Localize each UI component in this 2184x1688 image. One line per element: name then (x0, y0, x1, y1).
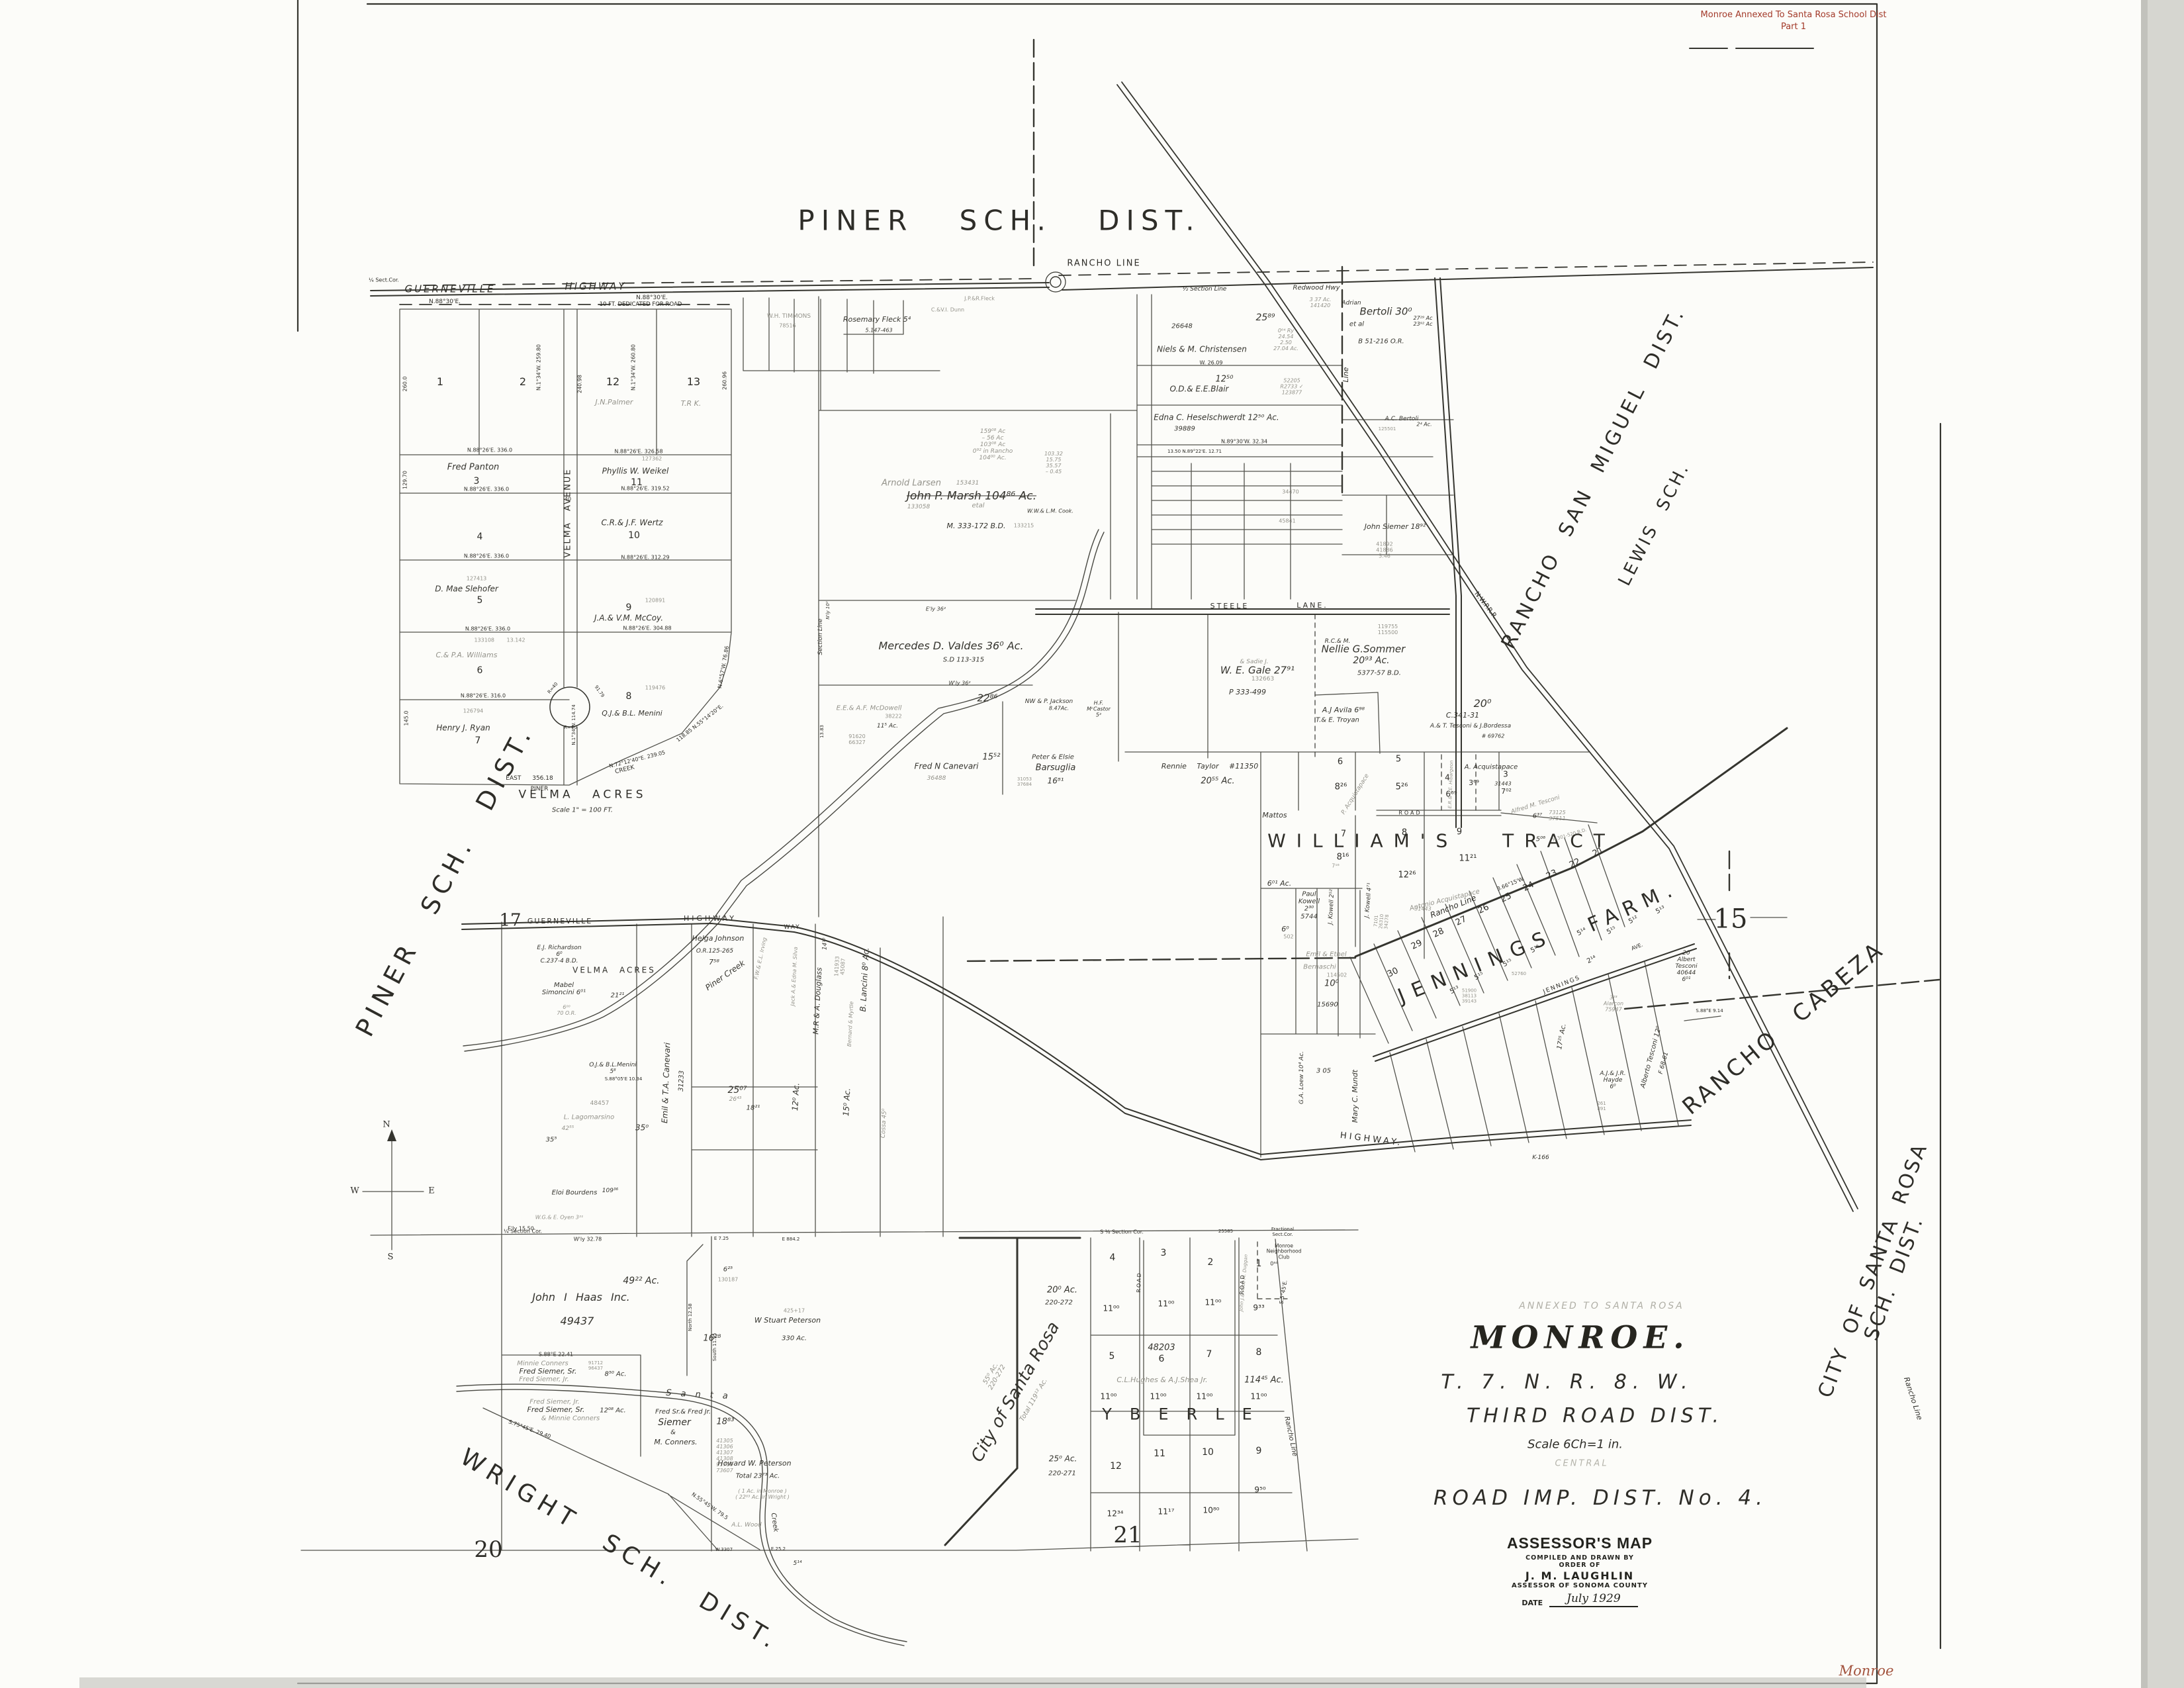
map-label: N.88°26'E. 336.0 (467, 448, 512, 454)
map-label: 9 (1457, 828, 1462, 838)
map-label: 3²³ Alarcon 75947 (1604, 996, 1623, 1013)
guerneville-highway-label: GUERNEVILLE (404, 284, 495, 295)
township-label: T. 7. N. R. 8. W. (1441, 1371, 1693, 1394)
map-label: 91712 96437 (588, 1361, 603, 1372)
map-label: S.88°E 22.41 (539, 1352, 573, 1358)
map-label: K-166 (1532, 1154, 1549, 1161)
map-label: 133215 (1014, 524, 1034, 530)
map-label: 8⁵⁰ Ac. (604, 1370, 626, 1378)
map-label: 9 (626, 603, 632, 614)
map-label: 48203 (1148, 1344, 1175, 1354)
map-label: W.3307 (715, 1548, 733, 1553)
map-label: J.P.&R.Fleck (964, 297, 995, 303)
map-label: 12 (606, 376, 619, 388)
map-label: Arnold Larsen (882, 479, 941, 489)
map-label: 14¹⁰ (821, 937, 829, 950)
map-label: T.& E. Troyan (1316, 716, 1359, 724)
map-label: 12²⁶ (1398, 871, 1416, 881)
map-label: 5²⁶ (1396, 783, 1408, 793)
map-label: O.J.& B.L.Menini 5⁸ (589, 1062, 637, 1075)
map-label: 78516 (779, 324, 796, 330)
map-label: 145.0 (404, 711, 410, 726)
map-label: N.1°34'W. 259.80 (537, 344, 543, 391)
map-label: John Siemer 18⁹² (1365, 523, 1426, 531)
map-label: 34470 (1282, 490, 1298, 496)
map-label: Bernaschi (1303, 963, 1336, 970)
map-label: 9 (1256, 1446, 1262, 1457)
map-label: 41305 41306 41307 41308 91710 73607 (716, 1438, 733, 1474)
road-district-label: THIRD ROAD DIST. (1467, 1405, 1723, 1428)
map-label: 153431 (956, 480, 979, 487)
map-label: WAY (784, 924, 800, 931)
map-label: W Stuart Peterson (754, 1317, 821, 1325)
velma-avenue-label: VELMA AVENUE (564, 468, 574, 557)
map-label: N.88°26'E. 336.0 (464, 487, 509, 493)
map-label: T.R K. (681, 400, 702, 408)
map-label: Scale 1" = 100 FT. (552, 806, 613, 814)
map-label: E'ly 36² (926, 607, 946, 613)
map-label: R=40 (564, 726, 577, 731)
scan-edge (79, 1677, 1866, 1688)
section-number-17: 17 (499, 911, 521, 930)
map-label: S ⅛ Section Cor. (1100, 1230, 1144, 1236)
map-label: 11⁰⁰ (1150, 1392, 1167, 1401)
map-label: Fred N Canevari (915, 762, 979, 771)
map-label: A.& T. Tesconi & J.Bordessa (1430, 723, 1511, 729)
map-label: A.L. Wood (731, 1522, 762, 1528)
map-label: 6⁰¹ Ac. (1267, 880, 1291, 888)
map-label: 11⁰⁰ (1197, 1392, 1213, 1401)
map-label: 220-271 (1048, 1470, 1076, 1477)
map-label: EAST 356.18 (506, 775, 553, 782)
map-label: Phyllis W. Weikel (602, 467, 669, 475)
map-label: 11¹⁷ (1158, 1507, 1175, 1516)
map-label: 7⁰² (1501, 788, 1512, 796)
map-label: B 51-216 O.R. (1358, 338, 1404, 345)
map-label: Helga Johnson (692, 935, 745, 943)
map-label: 20⁵⁵ Ac. (1201, 777, 1234, 787)
map-label: 45841 (1279, 519, 1295, 525)
map-label: HIGHWAY (565, 281, 626, 293)
assessor-stamp: ASSESSOR'S MAP COMPILED AND DRAWN BY ORD… (1497, 1534, 1662, 1607)
map-label: C.&V.I. Dunn (931, 308, 964, 314)
map-label: 20⁹³ Ac. (1353, 656, 1389, 667)
map-label: Mabel Simoncini 6⁰¹ (542, 982, 586, 996)
map-label: S.D 113-315 (943, 656, 984, 663)
map-label: 12⁰⁸ Ac. (600, 1407, 625, 1414)
owner-christensen: Niels & M. Christensen (1157, 345, 1247, 353)
map-label: 49437 (561, 1315, 594, 1327)
map-label: C.341-31 (1446, 712, 1479, 720)
map-label: 13.50 N.89°22'E. 12.71 (1167, 449, 1222, 455)
map-label: E.J. Richardson 6⁰ C.237-4 B.D. (537, 945, 581, 964)
map-label: 260.96 (723, 371, 729, 390)
map-label: L. Lagomarsino (564, 1113, 615, 1121)
owner-we-gale: W. E. Gale 27⁹¹ (1220, 665, 1295, 677)
map-label: 11⁰⁰ (1251, 1392, 1267, 1401)
map-label: 13 (687, 376, 700, 388)
map-label: Adrian (1342, 300, 1361, 306)
map-label: 133058 (907, 504, 930, 510)
map-label: Mary C. Mundt (1351, 1070, 1359, 1123)
map-label: 3 37 Ac. 141420 (1310, 297, 1332, 309)
map-label: 25⁸⁹ (1255, 313, 1275, 324)
map-label: Redwood Hwy (1293, 284, 1340, 291)
map-label: 8 (1402, 829, 1407, 839)
map-label: 16⁸¹ (1048, 776, 1064, 785)
map-label: Line (1342, 367, 1350, 383)
map-label: 52205 R2733 ✓ 123877 (1280, 379, 1303, 397)
velma-cul-de-sac (550, 687, 590, 727)
map-label: 6⁰⁰ 70 O.R. (557, 1005, 576, 1017)
title-annexed-note: ANNEXED TO SANTA ROSA (1519, 1301, 1684, 1311)
map-label: 35⁵ (546, 1136, 557, 1143)
map-label: W. 26.09 (1200, 361, 1223, 367)
map-label: A.J Avila 6⁹⁸ (1322, 706, 1365, 714)
map-label: 22⁸⁶ (977, 693, 997, 704)
map-label: J.N.Palmer (596, 399, 633, 406)
map-label: 10 (628, 531, 640, 541)
map-label: ROAD (1240, 1274, 1246, 1295)
road-improvement-district-label: ROAD IMP. DIST. No. 4. (1433, 1486, 1767, 1510)
map-label: 3 (1161, 1248, 1167, 1259)
map-label: 5 (1396, 755, 1401, 765)
map-label: M. 333-172 B.D. (947, 522, 1006, 530)
map-label: 73125 37511 (1549, 810, 1565, 822)
map-label: Fractional Sect.Cor. (1271, 1227, 1294, 1238)
map-label: 38222 (885, 714, 901, 720)
map-label: 18²¹ (747, 1104, 760, 1111)
map-label: HIGHWAY (684, 915, 737, 923)
map-label: N.88°26'E. 312.29 (621, 555, 669, 561)
map-label: & Minnie Conners (541, 1415, 600, 1422)
map-label: 20⁰ Ac. (1047, 1286, 1077, 1296)
map-label: Section Line (817, 618, 824, 655)
map-label: 20⁰ (1474, 698, 1492, 710)
map-label: 133108 13.142 (474, 638, 525, 644)
map-label: VELMA ACRES (572, 966, 656, 974)
map-label: Mattos (1262, 812, 1287, 820)
map-label: 6²⁵ (723, 1266, 733, 1273)
map-label: 52760 (1512, 972, 1526, 977)
map-label: Q.J.& B.L. Menini (602, 710, 662, 718)
map-label: 15⁰ Ac. (842, 1088, 852, 1116)
map-label: 6 (477, 666, 483, 677)
section-number-20: 20 (474, 1537, 502, 1562)
corner-annotation-line1: Monroe Annexed To Santa Rosa School Dist (1655, 9, 1933, 21)
map-label: 4 (477, 532, 483, 543)
map-label: 7 (1206, 1350, 1212, 1360)
map-label: ROAD (1136, 1272, 1143, 1293)
map-label: Fred Siemer, Sr. (520, 1368, 577, 1376)
map-label: S.88°05'E 10.34 (605, 1077, 643, 1082)
map-label: A.J.& J.R. Hayde 6⁰ (1600, 1070, 1625, 1090)
map-label: P 333-499 (1229, 688, 1266, 696)
stamp-line3: ASSESSOR OF SONOMA COUNTY (1497, 1582, 1662, 1589)
map-label: 6³⁷ (1533, 812, 1542, 820)
map-label: 141933 45087 (834, 956, 846, 976)
owner-mercedes-valdes: Mercedes D. Valdes 36⁰ Ac. (878, 640, 1023, 652)
map-label: 10 FT. DEDICATED FOR ROAD (600, 302, 682, 308)
road-junction-circle-outer (1046, 272, 1066, 292)
map-label: North 12.58 (688, 1303, 694, 1331)
map-label: O.R.125-265 (696, 948, 733, 955)
stamp-date-value: July 1929 (1549, 1592, 1637, 1607)
map-label: 13.83 (820, 725, 825, 738)
map-label: W.G.& E. Oyen 3²¹ (535, 1215, 584, 1221)
map-label: 8¹⁶ (1337, 853, 1349, 863)
map-label: 5¹⁴ (794, 1560, 802, 1567)
map-label: ¼ Sect.Cor. (369, 278, 399, 284)
map-label: 11⁰⁰ (1101, 1392, 1117, 1401)
map-label: 12³⁴ (1107, 1509, 1124, 1518)
map-label: 130187 (718, 1278, 739, 1284)
map-label: ¼ Section Cor. (504, 1229, 542, 1235)
map-label: Fred Sr.& Fred Jr. (655, 1408, 711, 1415)
map-label: 8 (626, 692, 632, 702)
small-dash-lines (1257, 614, 1476, 1299)
district-label-piner-top: PINER SCH. DIST. (797, 205, 1201, 236)
map-label: GUERNEVILLE (527, 917, 592, 925)
owner-nellie-sommer: Nellie G.Sommer (1322, 644, 1406, 655)
rancho-dash-lines (965, 40, 1939, 1009)
compass-arrow (387, 1129, 396, 1141)
map-label: 48457 (590, 1100, 610, 1107)
map-label: South 11.95 (713, 1333, 718, 1362)
map-label: N.88°26'E. 316.0 (461, 694, 506, 700)
map-label: 31053 37684 (1017, 777, 1032, 788)
map-label: W'ly 32.78 (574, 1237, 602, 1243)
map-label: PINER (531, 786, 549, 792)
map-label: 5377-57 B.D. (1357, 669, 1401, 677)
map-label: 49²² Ac. (623, 1276, 659, 1287)
map-label: 7 (475, 736, 481, 747)
map-label: C.R.& J.F. Wertz (601, 518, 662, 527)
map-label: 12 (1110, 1462, 1122, 1472)
map-label: 159⁰⁸ Ac – 56 Ac 103⁰⁸ Ac 0⁹² in Rancho … (973, 428, 1013, 461)
map-label: 425+17 (784, 1309, 805, 1315)
map-label: 127413 (467, 577, 487, 583)
owner-howard-peterson: Howard W. Peterson (717, 1460, 791, 1468)
map-label: 11 (1154, 1449, 1165, 1460)
owner-hughes-shea: C.L.Hughes & A.J.Shea Jr. (1116, 1376, 1207, 1384)
map-label: LANE. (1297, 602, 1328, 610)
scan-edge (2148, 0, 2184, 1688)
map-label: Peter & Elsie (1032, 753, 1074, 761)
map-label: 127362 (642, 457, 662, 463)
map-label: 126794 (463, 709, 484, 715)
map-label: 5 (1109, 1352, 1115, 1362)
map-label: 8.47Ac. (1049, 706, 1069, 712)
map-label: Total 23⁷³ Ac. (736, 1472, 780, 1479)
compass-west: W (350, 1186, 359, 1196)
map-label: 91620 66327 (848, 734, 865, 746)
map-label: D. Mae Slehofer (435, 585, 498, 593)
map-label: N'ly 10² (826, 601, 831, 619)
map-label: 9³³ (1253, 1303, 1264, 1312)
scan-edge (2141, 0, 2148, 1688)
map-label: 261 891 (1597, 1102, 1606, 1112)
map-label: 25⁰⁷ (727, 1086, 747, 1096)
map-label: 15690 (1317, 1001, 1338, 1008)
map-label: Emil & Ethel (1306, 951, 1346, 958)
map-label: 12⁵⁰ (1216, 375, 1234, 385)
owner-heselschwerdt: Edna C. Heselschwerdt 12⁵⁰ Ac. (1154, 413, 1279, 422)
map-label: 41892 41886 5.46 (1376, 542, 1392, 560)
map-label: 0⁶⁴ Ry 24.54 2.50 27.04 Ac. (1273, 328, 1298, 352)
map-label: 7 (1341, 830, 1346, 840)
road-junction-circle (1050, 277, 1061, 287)
map-label: ( 1 Ac. in Monroe ) ( 22⁸³ Ac. in Wright… (735, 1489, 790, 1501)
map-title: MONROE. (1471, 1320, 1690, 1356)
map-label: G.A. Loew 10⁴ Ac. (1298, 1051, 1305, 1104)
map-label: 11⁰⁰ (1205, 1298, 1222, 1307)
corner-annotation-line2: Part 1 (1655, 21, 1933, 33)
map-label: 11⁰⁰ (1103, 1304, 1120, 1313)
map-label: 129.70 (403, 471, 409, 489)
map-label: S.88°E 9.14 (1696, 1009, 1723, 1014)
map-label: 21²¹ (611, 992, 625, 999)
map-label: 25⁰ Ac. (1049, 1454, 1077, 1463)
map-label: 10⁸⁰ (1203, 1506, 1220, 1515)
map-label: 119476 (645, 686, 666, 692)
map-label: N.88°30'E. (429, 299, 461, 305)
map-label: E 884.2 (782, 1237, 800, 1243)
map-label: 42⁵⁵ (562, 1125, 574, 1132)
map-label: W'ly 36² (949, 681, 971, 687)
map-scale-label: Scale 6Ch=1 in. (1527, 1438, 1623, 1452)
map-label: 35⁰ (635, 1123, 649, 1132)
stamp-date-label: DATE (1522, 1599, 1543, 1607)
map-label: N.88°26'E. 326.58 (614, 449, 662, 455)
map-label: 11⁵ Ac. (877, 723, 898, 729)
map-label: 51900 38113 39143 (1462, 988, 1477, 1004)
map-label: W.H. TIMMONS (767, 313, 811, 320)
corner-signature: Monroe (1813, 1663, 1919, 1679)
map-linework (0, 0, 2184, 1688)
map-label: 120891 (645, 598, 666, 604)
owner-bertoli: Bertoli 30⁰ (1360, 306, 1412, 318)
map-label: Fred Siemer, Sr. (527, 1406, 585, 1414)
map-label: H.F. MᶜCastor 5² (1087, 701, 1111, 719)
map-label: 1 (1256, 1259, 1262, 1270)
map-label: Rennie Taylor #11350 (1161, 763, 1259, 771)
map-label: E 7.25 (714, 1237, 729, 1242)
map-label: et al (1349, 320, 1364, 328)
map-label: 3 (1503, 770, 1508, 778)
map-label: 125501 (1379, 427, 1396, 432)
stamp-title: ASSESSOR'S MAP (1497, 1534, 1662, 1552)
map-label: 114⁴⁵ Ac. (1244, 1376, 1284, 1386)
map-label: 5⁰⁶ (1536, 835, 1545, 843)
map-label: 5.147-463 (865, 328, 892, 334)
map-label: N.1°34'W. 260.80 (631, 344, 637, 391)
map-label: 114502 (1327, 973, 1347, 979)
map-label: 260.0 (403, 377, 409, 392)
map-label: Henry J. Ryan (436, 724, 490, 732)
map-label: 18⁸³ (717, 1418, 735, 1428)
assessor-map-sheet: PINER SCH. DIST.RANCHO LINEGUERNEVILLEHI… (0, 0, 2184, 1688)
map-label: 3 (474, 477, 480, 487)
map-label: E.E.& A.F. McDowell (837, 704, 902, 712)
map-label: N.88°26'E. 319.52 (621, 487, 669, 492)
map-label: 7¹⁶ (1332, 864, 1340, 870)
map-label: Barsuglia (1036, 764, 1076, 774)
map-label: 109³⁶ (602, 1188, 618, 1194)
stamp-assessor-name: J. M. LAUGHLIN (1497, 1570, 1662, 1582)
map-label: 2 (1208, 1258, 1214, 1268)
map-label: Fred Siemer, Jr. (519, 1376, 569, 1383)
map-label: 26648 (1171, 322, 1193, 330)
map-label: 8 (1256, 1348, 1262, 1358)
map-label: J.A.& V.M. McCoy. (594, 614, 663, 622)
monroe-neighborhood-club-label: Monroe Neighborhood Club (1267, 1243, 1302, 1260)
owner-john-p-marsh: John P. Marsh 104⁸⁶ Ac. (907, 490, 1036, 502)
map-label: Eloi Bourdens (552, 1189, 598, 1196)
map-label: 220-272 (1045, 1299, 1073, 1306)
section-number-21: 21 (1113, 1523, 1142, 1548)
map-label: Rosemary Fleck 5⁴ (843, 316, 911, 324)
map-label: 31233 (678, 1070, 686, 1092)
stamp-line1: COMPILED AND DRAWN BY (1497, 1554, 1662, 1562)
map-label: ½ Section Line (1183, 286, 1227, 293)
yberle-label: YBERLE (1102, 1406, 1270, 1424)
map-label: A. Acquistapace (1465, 763, 1518, 771)
map-label: 20 Albert Tesconi 40644 6⁰¹ (1675, 950, 1697, 983)
map-label: 0⁵⁰ (1270, 1262, 1278, 1268)
map-label: 3 05 (1316, 1067, 1331, 1074)
map-label: NW & P. Jackson (1025, 698, 1073, 705)
map-label: 119755 115500 (1378, 624, 1398, 636)
map-label: 27²⁹ Ac 23⁹² Ac (1413, 316, 1432, 328)
stamp-line2: ORDER OF (1497, 1562, 1662, 1569)
map-label: 6 (1338, 758, 1343, 768)
corner-annotation: Monroe Annexed To Santa Rosa School Dist… (1655, 9, 1933, 32)
owner-john-haas: John I Haas Inc. (532, 1291, 629, 1303)
map-label: N.88°26'E. 304.88 (623, 626, 671, 632)
map-label: N.88°26'E. 336.0 (464, 554, 509, 560)
map-label: 2 (520, 376, 526, 388)
map-label: 330 Ac. (782, 1335, 807, 1342)
map-label: 132663 (1251, 676, 1274, 682)
compass-south: S (388, 1252, 394, 1262)
map-label: 10⁰ (1324, 980, 1339, 990)
compass-east: E (428, 1186, 435, 1196)
map-label: # 69762 (1482, 734, 1505, 740)
map-label: 4 (1110, 1253, 1116, 1264)
map-label: 5 (477, 596, 483, 606)
map-label: 11²¹ (1459, 855, 1477, 865)
central-pencil-note: CENTRAL (1555, 1459, 1608, 1469)
map-label: 39889 (1174, 425, 1195, 432)
map-label: C.& P.A. Williams (436, 651, 498, 659)
map-label: O.D.& E.E.Blair (1170, 385, 1229, 393)
map-label: STEELE (1210, 602, 1250, 610)
map-label: etal (972, 502, 985, 509)
map-label: 15⁵² (983, 753, 1001, 763)
section-number-15: 15 (1714, 905, 1748, 935)
map-label: 9⁵⁰ (1254, 1485, 1265, 1494)
map-label: 25585 (1218, 1229, 1233, 1235)
map-label: Siemer (658, 1418, 690, 1429)
map-label: 2⁴ Ac. (1416, 422, 1432, 428)
map-label: 11⁰⁰ (1158, 1299, 1175, 1308)
map-label: 1 (437, 376, 443, 388)
map-label: M. Conners. (654, 1438, 697, 1446)
map-label: N.88°30'E. (636, 295, 668, 301)
map-label: 6⁰ (1281, 925, 1289, 933)
map-label: Fred Panton (447, 463, 500, 473)
